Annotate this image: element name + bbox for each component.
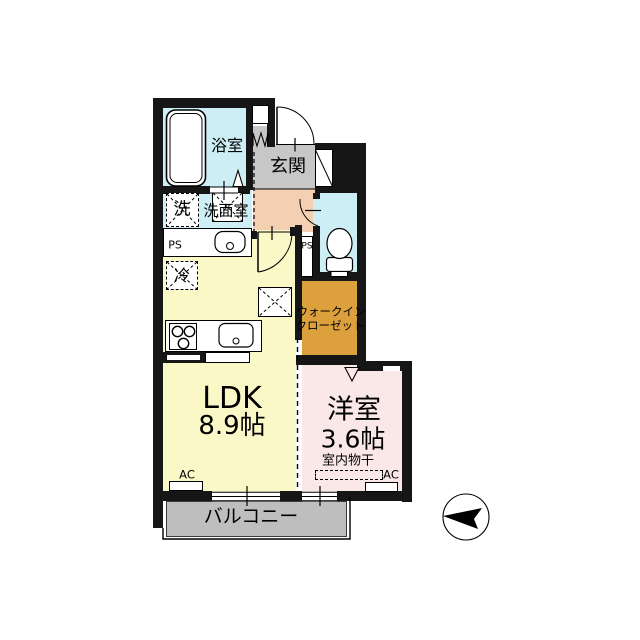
ac-western-label: AC (383, 469, 399, 481)
wall (313, 226, 320, 273)
wall-vent-notch (383, 366, 400, 371)
wall (280, 491, 302, 501)
wall (402, 361, 412, 502)
floorplan-canvas: 浴室 玄関 洗 洗面室 PS PS 冷 LDK 8.9帖 ウォークイン クローゼ… (0, 0, 640, 640)
balcony-label: バルコニー (204, 508, 299, 527)
ac-box-ldk (169, 481, 203, 491)
wall (155, 491, 212, 501)
entrance-label: 玄関 (270, 158, 306, 176)
hallway-fill (253, 189, 315, 232)
fridge-label: 冷 (174, 268, 190, 284)
compass-north-arrow (443, 494, 489, 540)
indoor-drying-label: 室内物干 (322, 455, 374, 468)
stove (169, 323, 197, 350)
wall (313, 193, 320, 199)
ac-ldk-label: AC (179, 469, 195, 481)
wall (290, 227, 302, 236)
hatch-box (258, 287, 292, 317)
wall (296, 355, 366, 365)
western-room-size-label: 3.6帖 (321, 427, 386, 452)
meter-box (252, 105, 269, 124)
wall (337, 491, 412, 501)
toilet-room-fill (313, 193, 360, 273)
wall (153, 98, 163, 528)
ps-right-label: PS (301, 243, 312, 252)
wic-label-line1: ウォークイン (297, 306, 366, 318)
ldk-label: LDK (202, 384, 262, 414)
shoe-cabinet (315, 149, 333, 187)
ldk-size-label: 8.9帖 (198, 413, 265, 439)
wic-label-line2: クローゼット (296, 320, 365, 332)
kitchen-counter-lower (205, 352, 250, 363)
drying-pole (315, 470, 383, 480)
bath-label: 浴室 (211, 138, 243, 154)
ac-box-western (365, 482, 398, 492)
washer-label: 洗 (174, 202, 191, 219)
western-room-label: 洋室 (327, 397, 381, 424)
ps-left-label: PS (168, 240, 182, 251)
kitchen-wall-slot (167, 355, 200, 360)
washroom-label: 洗面室 (203, 204, 248, 219)
